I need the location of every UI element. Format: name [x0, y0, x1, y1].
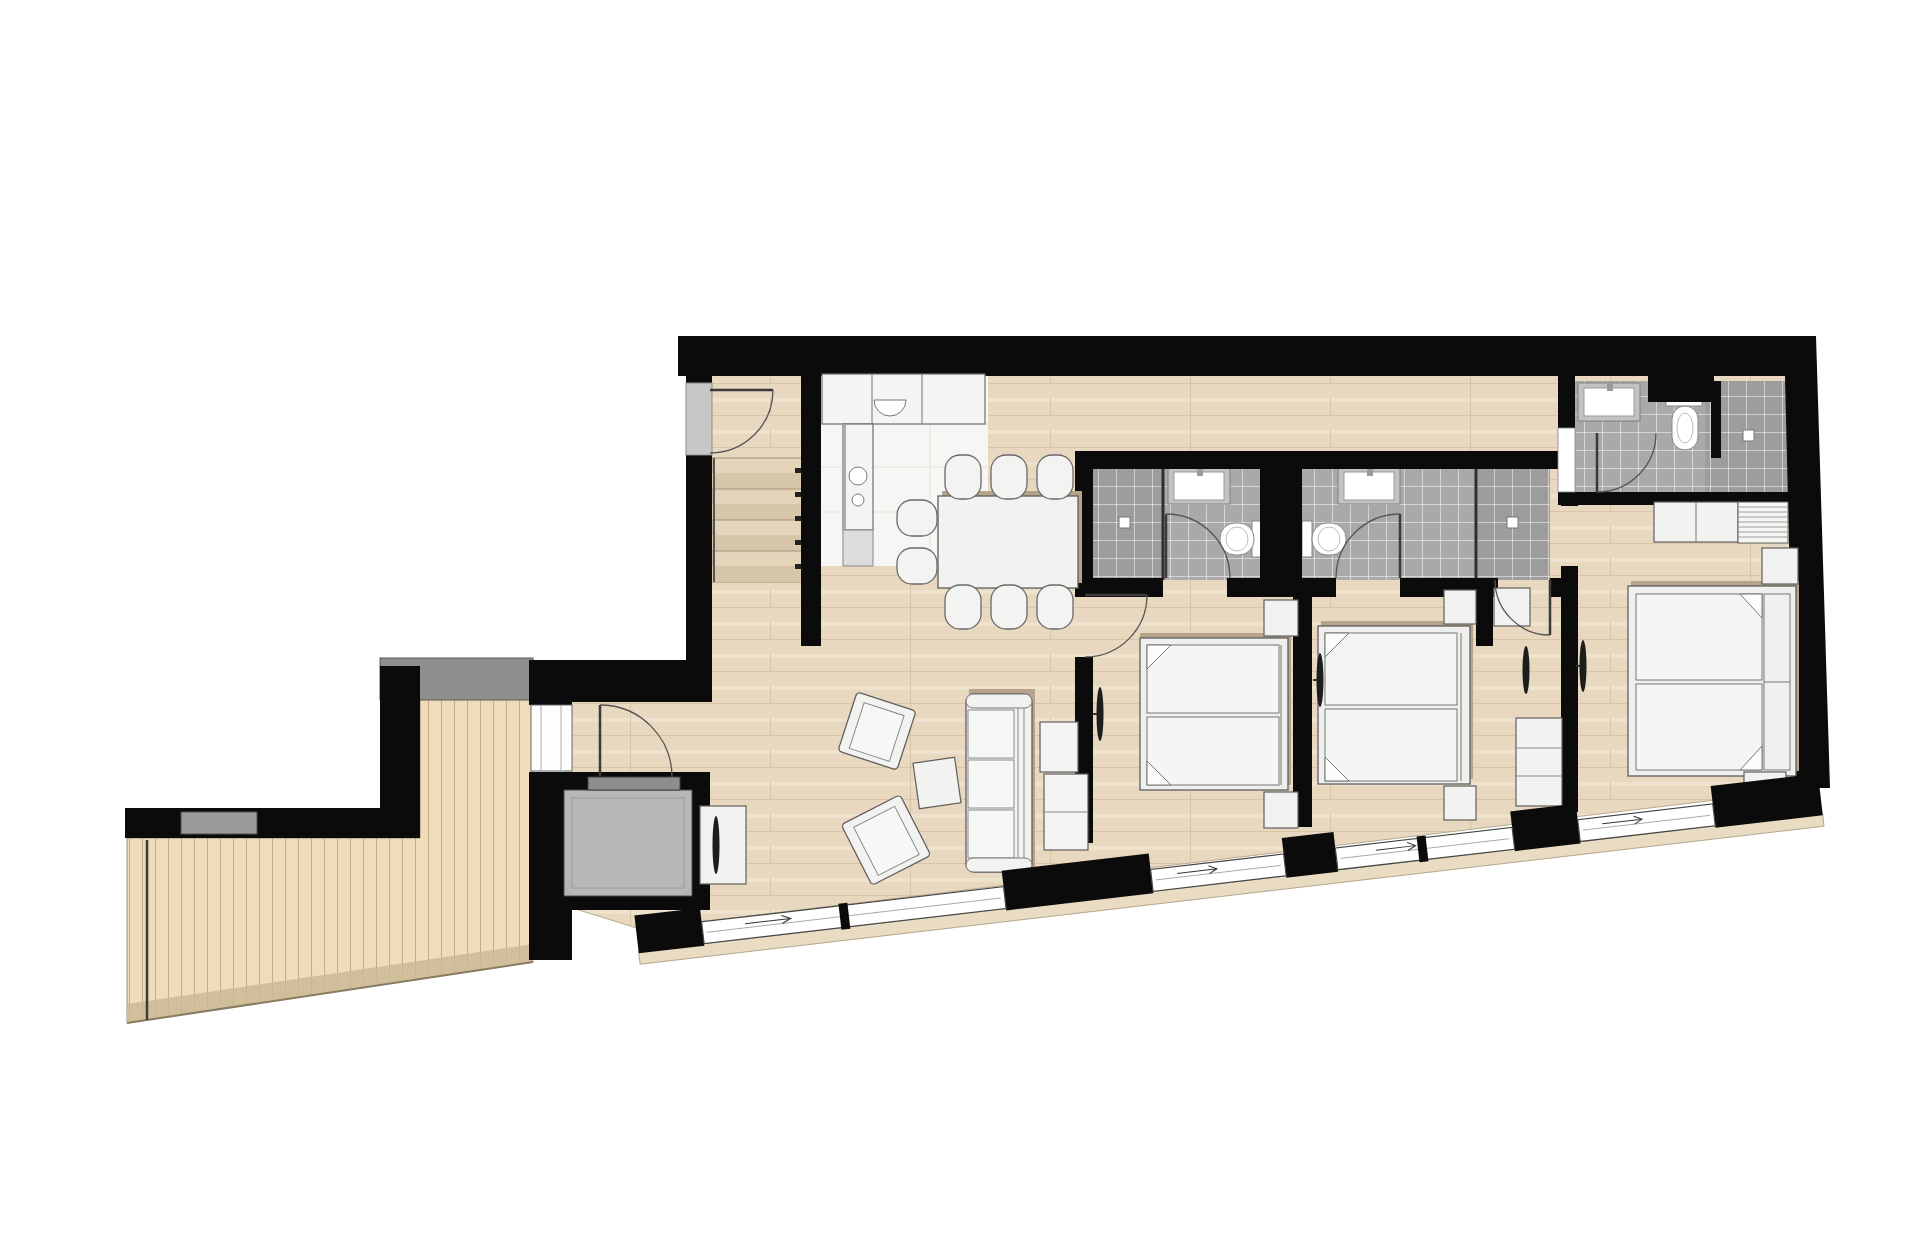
- wall-bath-south: [1227, 578, 1260, 597]
- closet: [1516, 718, 1562, 806]
- nightstand: [1264, 600, 1298, 636]
- washbasin: [1174, 472, 1224, 500]
- wall-bath-south: [1302, 578, 1336, 597]
- tv: [1580, 640, 1587, 692]
- toilet-cistern: [1302, 521, 1312, 557]
- faucet: [1367, 469, 1373, 476]
- wall-bath3-west: [1558, 374, 1575, 428]
- dining-chair: [1037, 585, 1073, 629]
- faucet: [1197, 469, 1203, 476]
- dining-chair: [897, 500, 937, 536]
- toilet: [1312, 523, 1346, 555]
- facade-wall: [1510, 804, 1580, 851]
- dining-table: [938, 496, 1078, 588]
- dining-chair: [897, 548, 937, 584]
- floor-plan-svg: Apartment floor plan: [0, 0, 1920, 1250]
- elevator-door: [588, 777, 680, 790]
- wall-duct-niche: [1648, 374, 1714, 402]
- dining-chair: [1037, 455, 1073, 499]
- wall-bath-divider: [1260, 451, 1302, 597]
- elevator-cabin: [564, 790, 692, 896]
- facade-wall: [1282, 832, 1338, 878]
- sofa-armrest: [966, 694, 1032, 708]
- terrace-planter: [181, 812, 257, 834]
- sink: [849, 467, 867, 485]
- entry-door-opening: [686, 383, 712, 455]
- shower-drain: [1743, 430, 1754, 441]
- washbasin: [1344, 472, 1394, 500]
- coffee-table-top: [913, 757, 961, 808]
- wall-west-upper: [529, 660, 572, 705]
- dining-chair: [991, 585, 1027, 629]
- coffee-table: [913, 757, 961, 808]
- tv-sideboard: [700, 806, 746, 884]
- nightstand: [1444, 590, 1476, 624]
- side-table: [1040, 722, 1078, 772]
- bed-mattress: [1325, 709, 1457, 781]
- nightstand: [1762, 548, 1798, 584]
- stair-tread: [712, 566, 802, 582]
- sofa-seat: [968, 760, 1014, 808]
- kitchen-counter: [822, 374, 985, 424]
- dining-chair: [945, 585, 981, 629]
- bathroom-3-door-opening: [1558, 428, 1575, 492]
- bed-mattress: [1325, 633, 1457, 705]
- toilet: [1220, 523, 1254, 555]
- stair-tread: [712, 535, 802, 551]
- floor-plan: Apartment floor plan: [0, 0, 1920, 1250]
- sink: [852, 494, 864, 506]
- dining-chair: [945, 455, 981, 499]
- terrace-door: [531, 705, 572, 771]
- faucet: [1607, 384, 1613, 391]
- wall-north: [678, 336, 1816, 376]
- appliance: [843, 530, 873, 566]
- bed-mattress: [1636, 684, 1762, 770]
- facade-wall: [634, 908, 704, 953]
- tv: [1097, 687, 1104, 741]
- shower-drain: [1119, 517, 1130, 528]
- bed-mattress: [1636, 594, 1762, 680]
- dining-chair: [991, 455, 1027, 499]
- wall-bedroom2-stub: [1476, 582, 1493, 646]
- plan-root: [125, 336, 1830, 1023]
- tv: [1523, 646, 1530, 694]
- sofa-seat: [968, 810, 1014, 858]
- tv: [713, 816, 720, 874]
- terrace-wall-west: [380, 666, 420, 838]
- bed-mattress: [1147, 717, 1279, 785]
- shower-drain: [1507, 517, 1518, 528]
- washbasin: [1584, 388, 1634, 416]
- bed-mattress: [1147, 645, 1279, 713]
- tv: [1317, 653, 1324, 707]
- wall-stair-east: [801, 374, 821, 646]
- stair-tread: [712, 504, 802, 520]
- nightstand: [1444, 786, 1476, 820]
- sofa-seat: [968, 710, 1014, 758]
- stair-tread: [712, 473, 802, 489]
- wall-bath-north: [1075, 451, 1567, 469]
- wall-bedroom3-west: [1561, 566, 1578, 812]
- nightstand: [1264, 792, 1298, 828]
